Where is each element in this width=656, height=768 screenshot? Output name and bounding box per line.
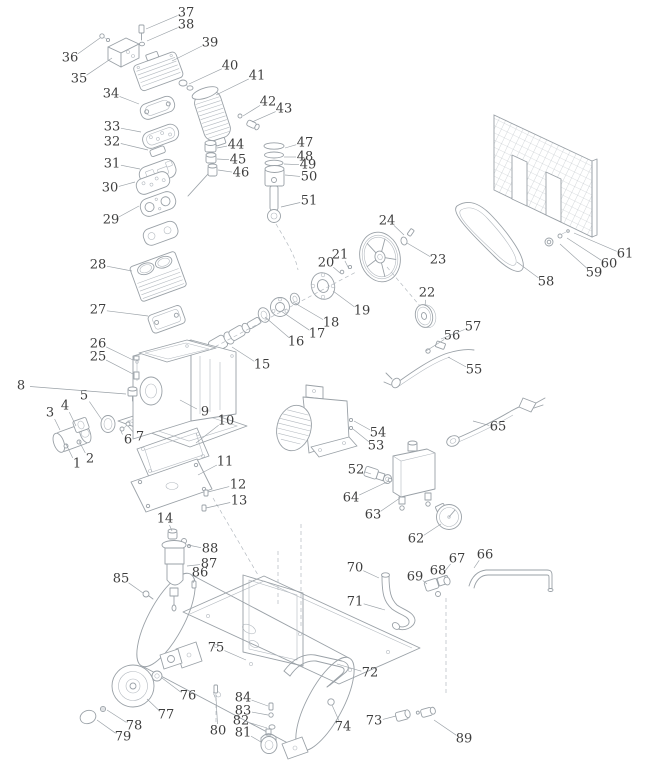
part-callout-29: 29	[103, 206, 139, 228]
part-callout-22: 22	[419, 286, 436, 307]
part-callout-31: 31	[104, 157, 140, 172]
motor-screw	[349, 418, 352, 421]
tank-plug	[416, 706, 436, 719]
part-callout-55: 55	[448, 357, 482, 378]
part-callout-66: 66	[474, 548, 493, 569]
part-callout-40: 40	[189, 59, 238, 85]
part-callout-77: 77	[147, 699, 174, 723]
part-callout-27: 27	[90, 303, 148, 318]
svg-text:80: 80	[210, 724, 227, 739]
svg-text:74: 74	[335, 720, 352, 735]
part-callout-14: 14	[157, 512, 174, 532]
svg-text:8: 8	[17, 379, 25, 394]
svg-text:29: 29	[103, 213, 120, 228]
part-callout-70: 70	[347, 561, 379, 579]
pressure-switch	[388, 441, 435, 510]
filter-clip	[100, 34, 110, 42]
svg-text:44: 44	[228, 138, 245, 153]
svg-text:84: 84	[235, 691, 252, 706]
shaft-nut	[289, 292, 302, 306]
svg-text:11: 11	[217, 455, 234, 470]
drive-belt	[456, 202, 524, 271]
svg-text:75: 75	[208, 641, 225, 656]
svg-text:63: 63	[365, 508, 382, 523]
part-callout-13: 13	[206, 494, 247, 509]
air-filter-box	[108, 38, 139, 67]
part-callout-3: 3	[46, 406, 60, 431]
guard-screws	[545, 230, 569, 246]
svg-text:73: 73	[366, 714, 383, 729]
svg-text:32: 32	[104, 135, 121, 150]
svg-text:14: 14	[157, 512, 174, 527]
tank-bolt	[143, 591, 153, 599]
svg-text:57: 57	[465, 320, 482, 335]
svg-text:69: 69	[407, 570, 424, 585]
svg-text:51: 51	[301, 194, 318, 209]
tank-port	[328, 699, 334, 705]
part-callout-19: 19	[333, 291, 370, 319]
belt-guard-mesh	[494, 115, 597, 246]
svg-text:10: 10	[218, 414, 235, 429]
svg-text:26: 26	[90, 337, 107, 352]
unloader-fittings	[188, 141, 217, 197]
part-callout-15: 15	[232, 347, 270, 373]
svg-text:54: 54	[370, 426, 387, 441]
mounting-plate	[131, 459, 212, 512]
svg-text:28: 28	[90, 258, 107, 273]
part-callout-89: 89	[434, 720, 472, 747]
base-gasket	[147, 304, 186, 334]
svg-text:36: 36	[62, 51, 79, 66]
part-callout-24: 24	[379, 214, 404, 236]
svg-text:42: 42	[260, 95, 277, 110]
crank-hub	[308, 265, 352, 302]
callout-labels: 1234567891011121314151617181920212223242…	[17, 6, 633, 747]
svg-text:12: 12	[230, 478, 247, 493]
svg-text:22: 22	[419, 286, 436, 301]
svg-text:18: 18	[323, 316, 340, 331]
parts-diagram-page: 1234567891011121314151617181920212223242…	[0, 0, 656, 768]
svg-text:47: 47	[297, 136, 314, 151]
svg-text:24: 24	[379, 214, 396, 229]
connecting-rod	[268, 186, 281, 223]
hub-cap	[78, 708, 97, 726]
part-callout-64: 64	[343, 481, 389, 506]
exploded-parts-diagram: 1234567891011121314151617181920212223242…	[0, 0, 656, 768]
svg-text:50: 50	[301, 170, 318, 185]
part-callout-58: 58	[517, 262, 554, 290]
svg-text:39: 39	[202, 36, 219, 51]
part-callout-5: 5	[80, 389, 102, 421]
part-callout-42: 42	[243, 95, 276, 117]
svg-text:1: 1	[73, 457, 81, 472]
part-callout-33: 33	[104, 120, 141, 135]
svg-text:53: 53	[368, 439, 385, 454]
part-callout-12: 12	[208, 478, 246, 493]
svg-text:43: 43	[276, 102, 293, 117]
outlet-pipe	[436, 570, 553, 592]
svg-text:46: 46	[233, 166, 250, 181]
part-callout-2: 2	[79, 441, 94, 467]
drain-valve	[395, 709, 411, 721]
head-bolts	[139, 25, 145, 46]
regulator-screw	[192, 581, 196, 588]
svg-text:72: 72	[362, 666, 379, 681]
part-callout-16: 16	[265, 317, 304, 350]
svg-text:83: 83	[235, 704, 252, 719]
part-callout-50: 50	[285, 170, 317, 185]
part-callout-38: 38	[147, 18, 194, 42]
svg-text:40: 40	[222, 59, 239, 74]
wheel	[112, 665, 154, 707]
hub-setscrew	[340, 270, 344, 274]
svg-text:55: 55	[466, 363, 483, 378]
silencer-screws	[238, 114, 260, 131]
axle-bolt	[100, 706, 105, 711]
svg-text:35: 35	[71, 72, 88, 87]
svg-text:25: 25	[90, 350, 107, 365]
part-callout-54: 54	[354, 421, 386, 441]
part-callout-8: 8	[17, 379, 126, 395]
svg-text:41: 41	[249, 69, 266, 84]
switch-wire	[384, 341, 474, 390]
svg-text:21: 21	[332, 248, 349, 263]
svg-text:13: 13	[231, 494, 248, 509]
svg-text:79: 79	[115, 730, 132, 745]
part-callout-73: 73	[366, 714, 396, 729]
svg-text:87: 87	[201, 557, 218, 572]
svg-text:3: 3	[46, 406, 54, 421]
outlet-fitting	[424, 576, 451, 597]
part-callout-32: 32	[104, 135, 148, 151]
svg-text:19: 19	[354, 304, 371, 319]
part-callout-6: 6	[121, 431, 132, 448]
part-callout-25: 25	[90, 350, 133, 375]
svg-text:65: 65	[490, 420, 507, 435]
cylinder-block	[129, 251, 187, 302]
svg-text:2: 2	[86, 452, 94, 467]
part-callout-34: 34	[103, 87, 139, 105]
svg-text:85: 85	[113, 572, 130, 587]
head-gasket	[138, 94, 176, 121]
svg-text:68: 68	[430, 564, 447, 579]
svg-text:60: 60	[601, 257, 618, 272]
part-callout-47: 47	[285, 136, 313, 151]
svg-text:4: 4	[61, 399, 69, 414]
part-callout-65: 65	[473, 420, 506, 435]
svg-text:52: 52	[348, 463, 365, 478]
electric-motor	[272, 385, 357, 457]
part-callout-23: 23	[407, 243, 446, 268]
part-callout-51: 51	[281, 194, 317, 209]
svg-text:9: 9	[201, 405, 209, 420]
part-callout-71: 71	[347, 595, 385, 611]
svg-text:67: 67	[449, 552, 466, 567]
motor-pulley	[413, 302, 438, 330]
part-callout-67: 67	[445, 552, 465, 572]
svg-text:71: 71	[347, 595, 364, 610]
svg-text:66: 66	[477, 548, 494, 563]
part-callout-62: 62	[408, 524, 441, 547]
svg-text:34: 34	[103, 87, 120, 102]
part-callout-63: 63	[365, 498, 400, 523]
svg-text:23: 23	[430, 253, 447, 268]
piston	[265, 166, 284, 187]
piston-rings	[264, 143, 284, 166]
cylinder-gasket-lower	[141, 219, 180, 247]
svg-text:31: 31	[104, 157, 121, 172]
svg-text:61: 61	[617, 247, 634, 262]
svg-text:64: 64	[343, 491, 360, 506]
svg-text:58: 58	[538, 275, 555, 290]
part-callout-4: 4	[61, 399, 76, 427]
svg-text:76: 76	[180, 689, 197, 704]
svg-text:33: 33	[104, 120, 121, 135]
svg-text:56: 56	[444, 329, 461, 344]
wheel-washer	[152, 671, 162, 681]
bearing-flange	[271, 298, 290, 317]
oil-seal-ring	[101, 416, 115, 433]
svg-text:38: 38	[178, 18, 195, 33]
svg-text:77: 77	[158, 708, 175, 723]
svg-text:88: 88	[202, 542, 219, 557]
part-callout-30: 30	[102, 181, 135, 196]
part-callout-46: 46	[218, 166, 249, 181]
svg-text:6: 6	[124, 433, 132, 448]
part-callout-59: 59	[560, 244, 602, 281]
part-callout-36: 36	[62, 38, 100, 66]
part-callout-21: 21	[332, 248, 349, 270]
part-callout-88: 88	[188, 542, 218, 557]
svg-text:62: 62	[408, 532, 425, 547]
svg-text:15: 15	[254, 358, 271, 373]
svg-text:89: 89	[456, 732, 473, 747]
svg-text:27: 27	[90, 303, 107, 318]
part-callout-28: 28	[90, 258, 132, 273]
part-callout-85: 85	[113, 572, 143, 594]
flywheel	[355, 228, 406, 286]
svg-text:30: 30	[102, 181, 119, 196]
part-callout-39: 39	[172, 36, 218, 62]
part-callout-68: 68	[430, 564, 447, 580]
svg-text:7: 7	[136, 430, 144, 445]
svg-text:16: 16	[288, 335, 305, 350]
svg-text:70: 70	[347, 561, 364, 576]
head-fitting	[179, 80, 193, 90]
